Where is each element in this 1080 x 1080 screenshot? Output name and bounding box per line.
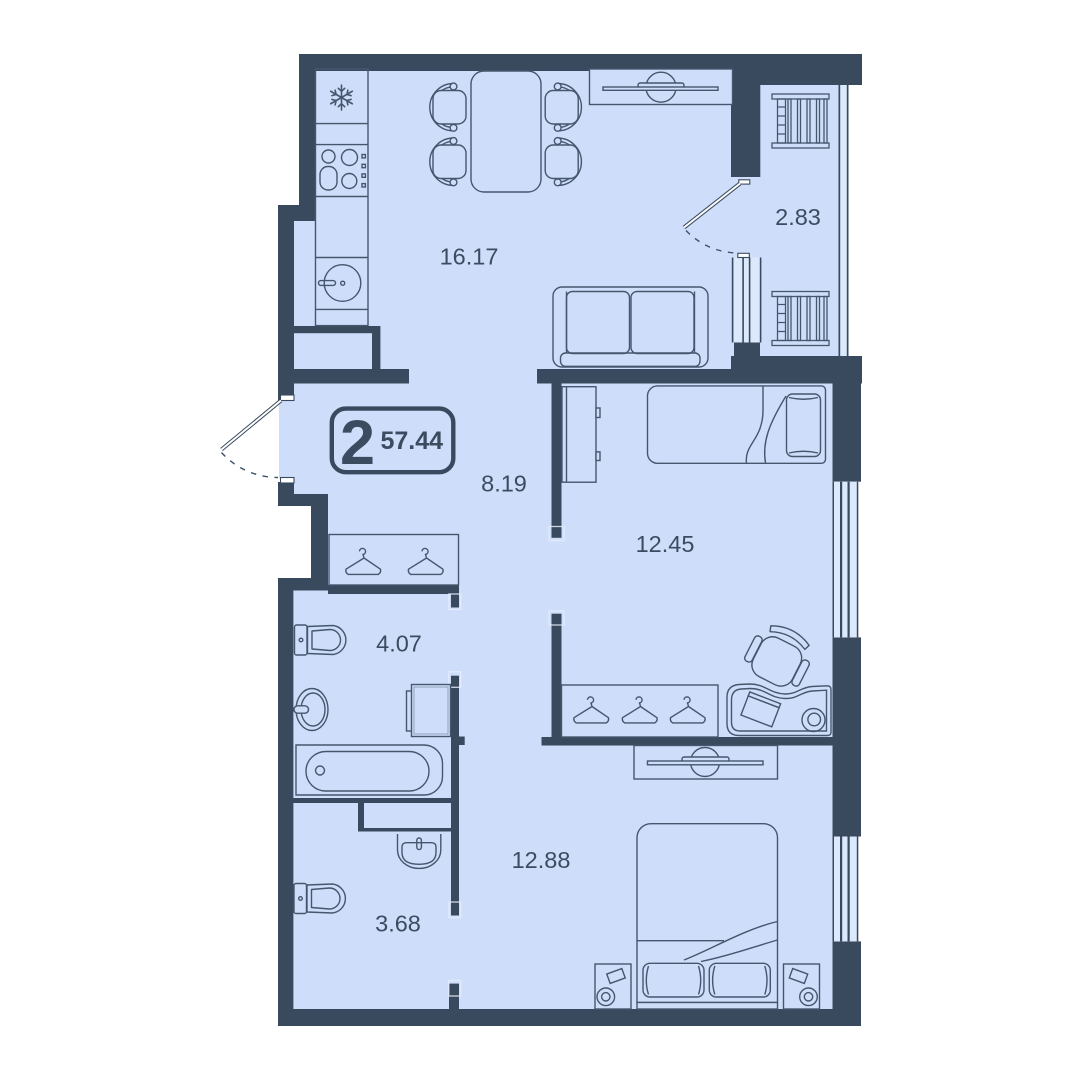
svg-text:8.19: 8.19 xyxy=(481,470,527,496)
svg-text:12.88: 12.88 xyxy=(512,847,571,873)
svg-text:12.45: 12.45 xyxy=(636,531,695,557)
svg-text:4.07: 4.07 xyxy=(376,630,422,656)
svg-text:57.44: 57.44 xyxy=(381,427,444,455)
svg-text:3.68: 3.68 xyxy=(375,910,421,936)
svg-text:16.17: 16.17 xyxy=(440,243,499,269)
svg-text:2.83: 2.83 xyxy=(775,204,821,230)
svg-text:2: 2 xyxy=(340,408,375,478)
